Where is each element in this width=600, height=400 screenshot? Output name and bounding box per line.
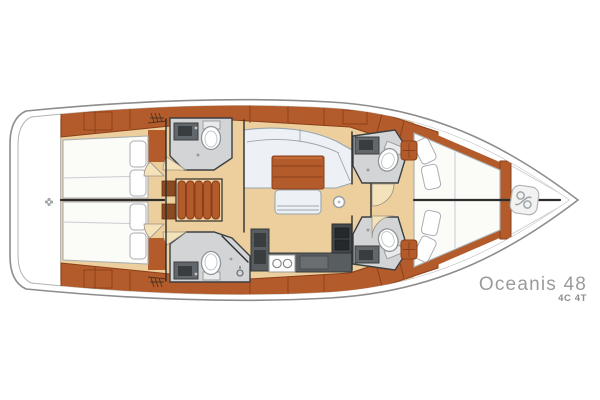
stove-icon bbox=[332, 224, 352, 253]
galley-sinks-icon bbox=[269, 255, 295, 272]
sink-icon bbox=[355, 137, 379, 154]
deck-plan-canvas: Oceanis 48 4C 4T bbox=[0, 0, 600, 400]
saloon-table bbox=[272, 156, 324, 189]
anchor-chain-icon bbox=[509, 184, 540, 215]
mid-head-port bbox=[353, 130, 408, 183]
sink-icon bbox=[174, 262, 198, 279]
model-name: Oceanis 48 bbox=[479, 274, 587, 295]
hatch-seat-starboard bbox=[401, 240, 417, 259]
steps-icon bbox=[178, 181, 220, 219]
pillow bbox=[130, 170, 146, 196]
mid-head-starboard bbox=[353, 217, 408, 270]
toilet-icon bbox=[202, 252, 221, 281]
sink-icon bbox=[355, 246, 379, 263]
oceanis-48-deck-plan: Oceanis 48 4C 4T bbox=[0, 0, 600, 400]
layout-version: 4C 4T bbox=[558, 293, 587, 304]
pillow bbox=[130, 233, 146, 259]
branding: Oceanis 48 4C 4T bbox=[479, 274, 587, 304]
toilet-icon bbox=[202, 121, 221, 150]
mast-post bbox=[334, 197, 345, 208]
hatch-seat-port bbox=[401, 141, 417, 160]
sink-icon bbox=[174, 123, 198, 140]
pillow bbox=[130, 141, 146, 167]
pillow bbox=[130, 204, 146, 230]
aft-head-port bbox=[163, 118, 232, 170]
saloon-bench bbox=[275, 190, 321, 214]
